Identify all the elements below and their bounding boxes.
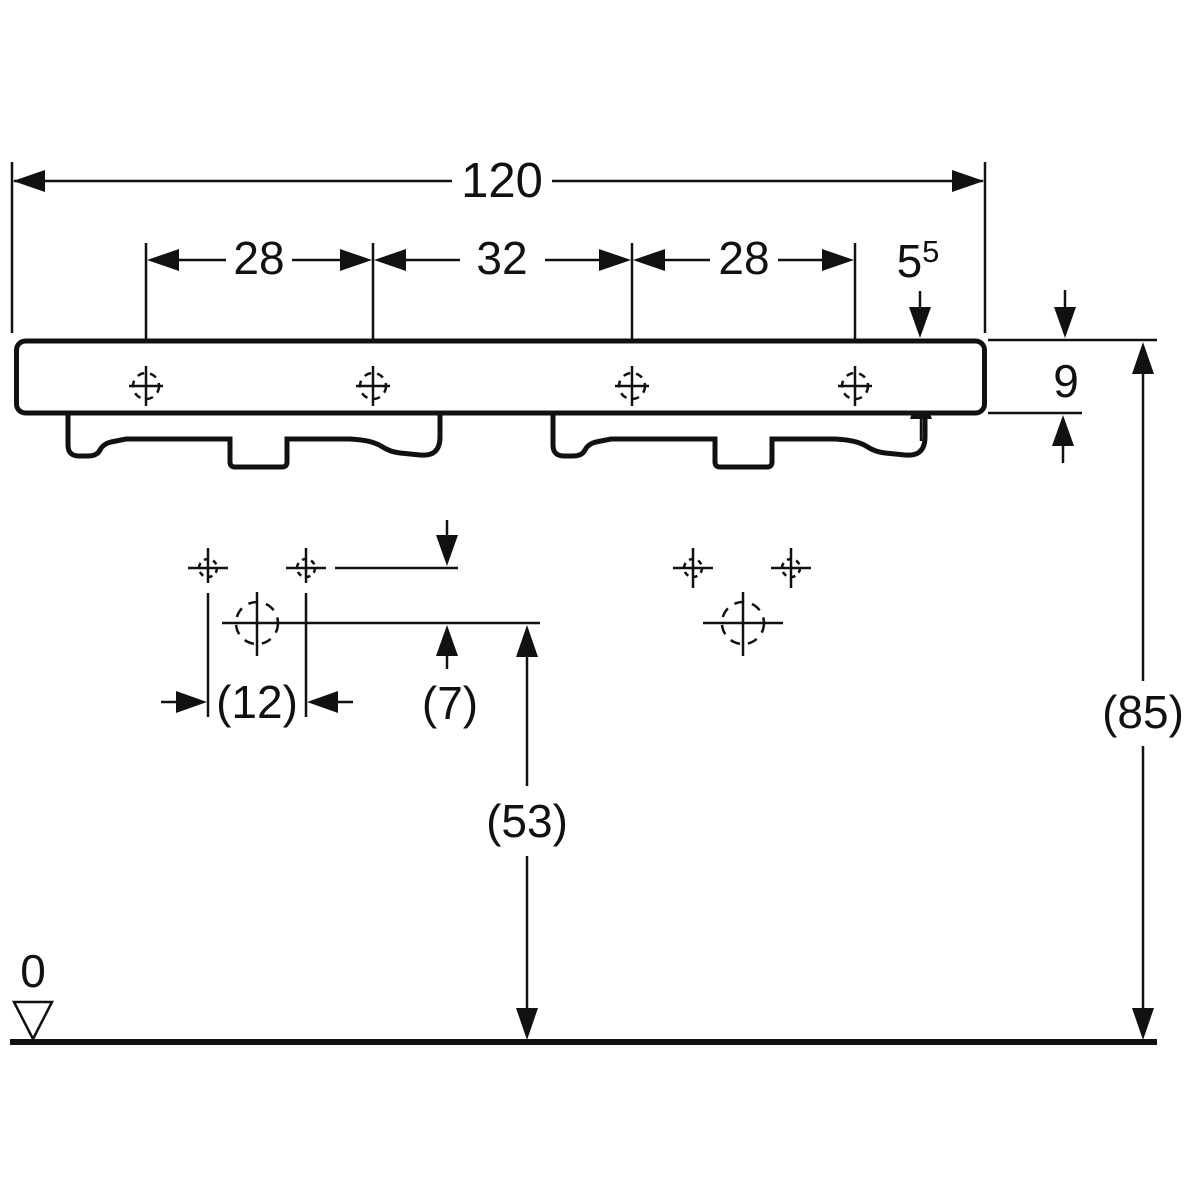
dim-label-overall-width: 120 [461,154,543,208]
arrowhead-down-icon [516,1008,538,1040]
arrowhead-icon [599,249,631,271]
dim-apron-height: 9 [988,290,1157,463]
drain-hole-marker [703,592,783,656]
dim-hole-offset: (7) [422,520,478,729]
dim-label-drain-height: (53) [486,795,568,847]
fixing-hole-marker [771,548,811,588]
arrowhead-icon [374,249,406,271]
dimension-drawing: 120 28 32 28 55 [0,0,1200,1200]
arrowhead-icon [822,249,854,271]
arrowhead-icon [340,249,372,271]
dim-drain-height: (53) [486,625,568,1040]
basin-bowl-profile-left [68,413,440,467]
dim-label-hole-offset: (7) [422,677,478,729]
washbasin-front-view [17,341,985,467]
arrowhead-down-icon [909,307,931,338]
basin-slab-outline [17,341,985,413]
arrowhead-icon [633,249,665,271]
fixing-hole-marker [673,548,713,588]
datum-level-label: 0 [20,945,46,997]
dim-label-spacing-center: 32 [476,232,527,284]
arrowhead-icon [147,249,179,271]
arrowhead-right-icon [952,170,984,192]
datum-triangle-icon [14,1002,52,1039]
arrowhead-down-icon [436,535,458,566]
fixing-hole-marker [188,548,228,583]
dim-rim-height: (85) [1102,342,1184,1040]
dim-label-apron-height: 9 [1053,355,1079,407]
dim-label-hole-spacing: (12) [216,676,298,728]
dim-label-tap-edge-distance: 55 [897,234,940,287]
dim-label-spacing-left: 28 [233,232,284,284]
fixing-hole-marker [286,548,326,583]
datum-marker: 0 [14,945,52,1039]
arrowhead-right-icon [176,691,207,713]
dim-label-spacing-right: 28 [718,232,769,284]
arrowhead-left-icon [13,170,45,192]
arrowhead-down-icon [1132,1008,1154,1040]
basin-bowl-profile-right [553,413,925,467]
arrowhead-down-icon [1054,307,1076,338]
dim-label-rim-height: (85) [1102,686,1184,738]
fixing-hole-markers-right [673,548,811,656]
